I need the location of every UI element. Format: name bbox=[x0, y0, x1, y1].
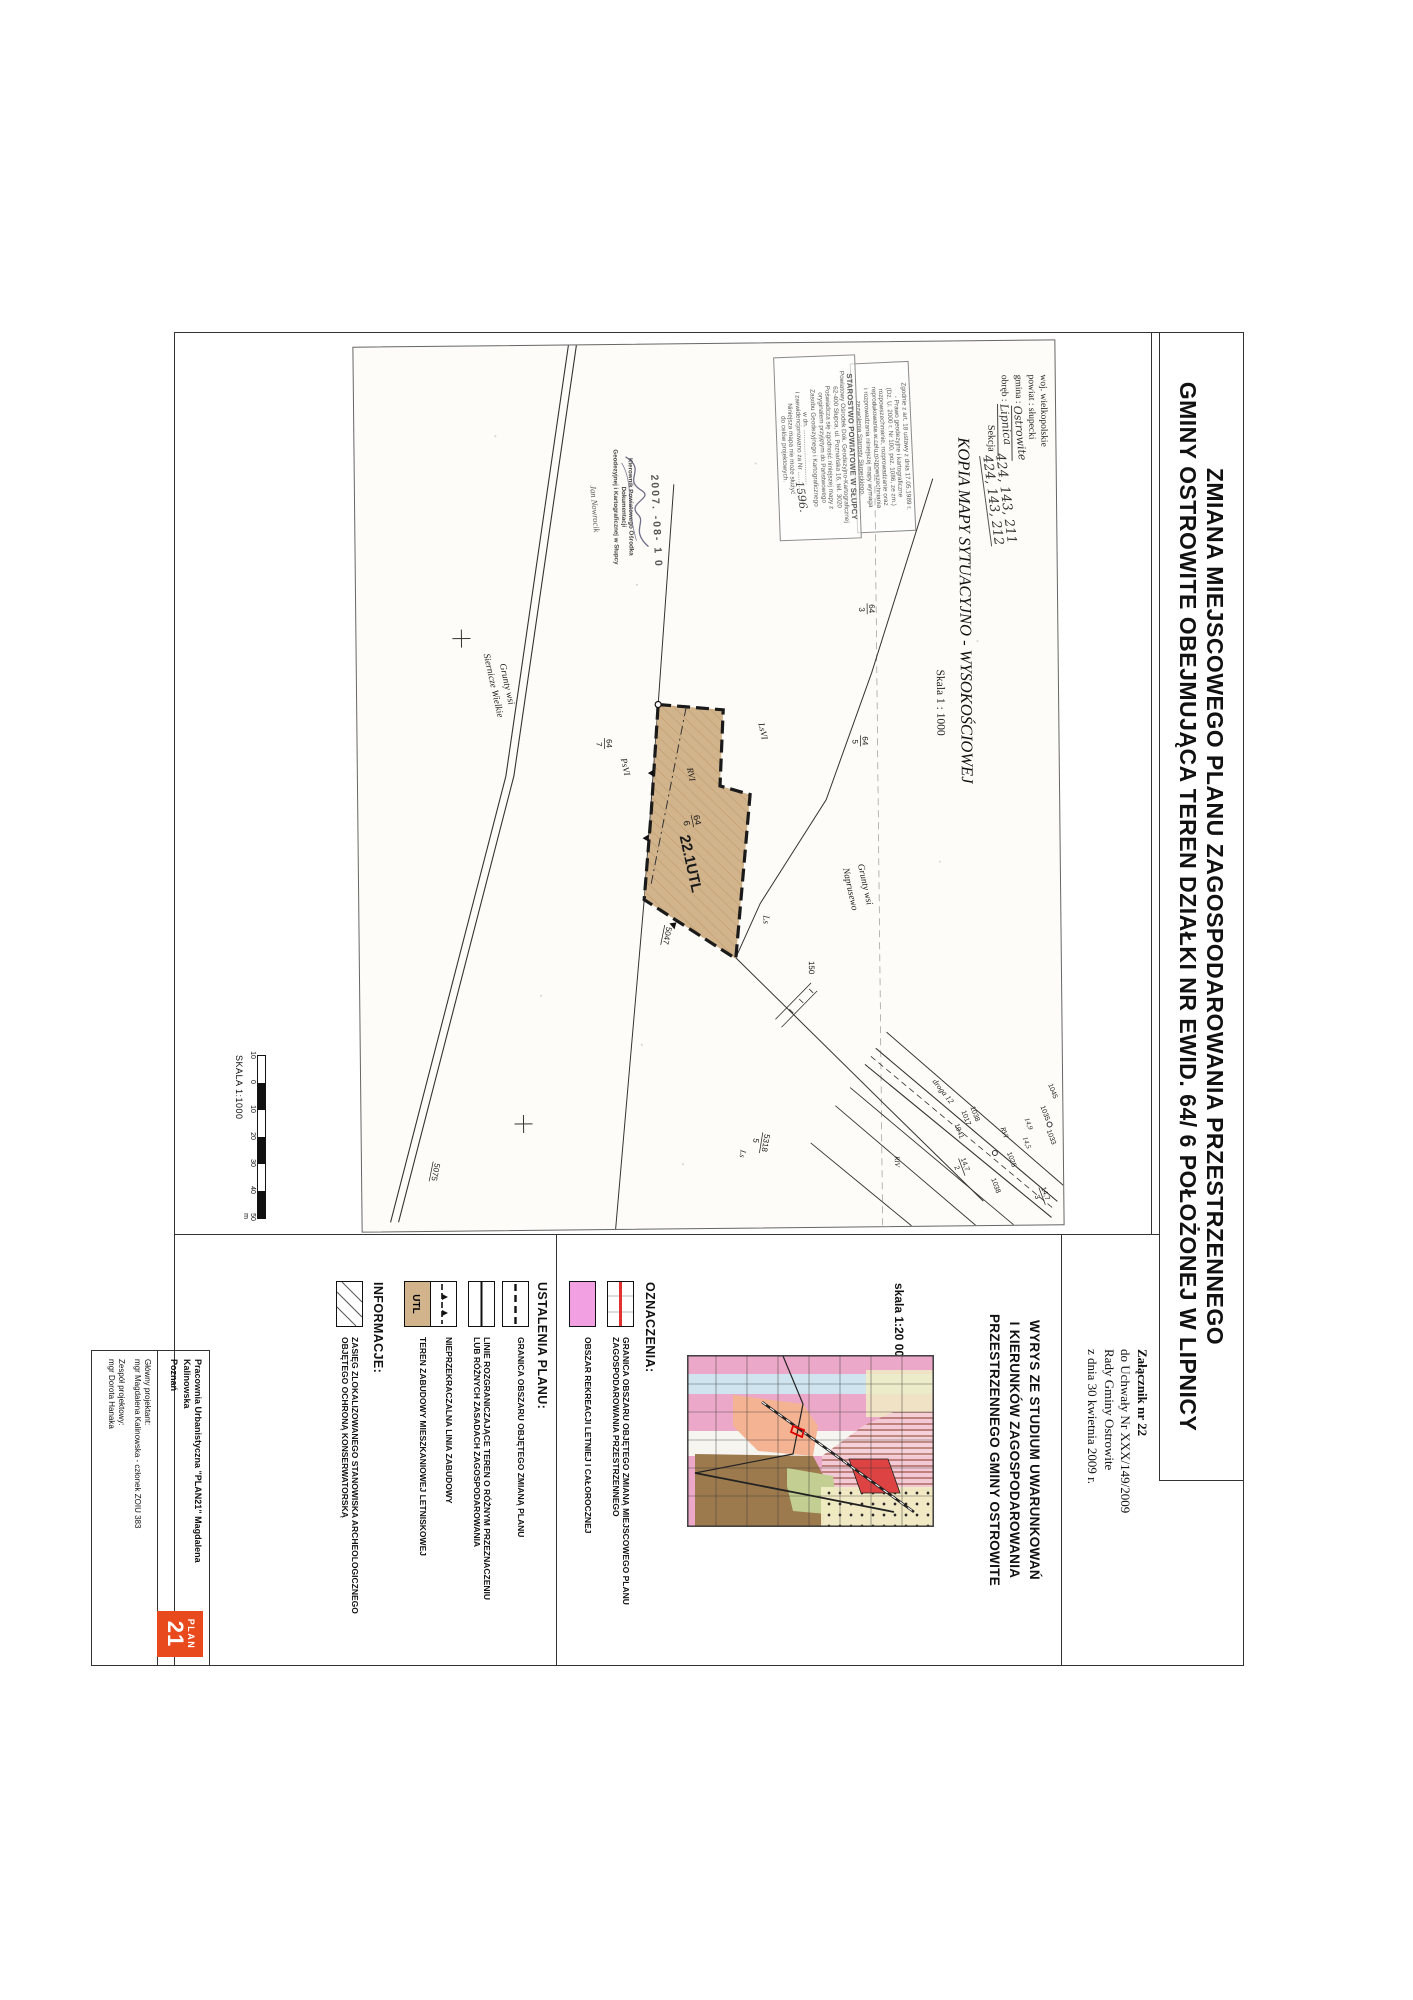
svg-text:3: 3 bbox=[1033, 1194, 1041, 1200]
role2-label: Zespół projektowy: bbox=[116, 1359, 126, 1657]
map-label: Siernicze Wielkie bbox=[481, 653, 505, 719]
scalebar-segment bbox=[258, 1083, 265, 1110]
map-label: 1025 bbox=[1005, 1151, 1017, 1168]
legend-symbol-red-line bbox=[607, 1281, 634, 1327]
scalebar-tick: 40 bbox=[249, 1186, 256, 1194]
ustalenia-heading: USTALENIA PLANU: bbox=[535, 1282, 549, 1409]
svg-text:1017: 1017 bbox=[960, 1110, 972, 1127]
map-label: 5047 bbox=[661, 925, 674, 947]
svg-text:PsVI: PsVI bbox=[619, 756, 633, 777]
office-name: Pracownia Urbanistyczna "PLAN21" Magdale… bbox=[181, 1359, 203, 1579]
map-label: Naprusewo bbox=[840, 866, 859, 912]
office-row: Pracownia Urbanistyczna "PLAN21" Magdale… bbox=[157, 1351, 209, 1665]
legend-symbol-pink-fill bbox=[569, 1281, 596, 1327]
study-heading: WYRYS ZE STUDIUM UWARUNKOWAŃI KIERUNKÓW … bbox=[984, 1235, 1044, 1665]
svg-text:1038: 1038 bbox=[989, 1177, 1001, 1194]
document-page: ZMIANA MIEJSCOWEGO PLANU ZAGOSPODAROWANI… bbox=[0, 0, 1413, 2000]
svg-text:5318: 5318 bbox=[760, 1133, 772, 1153]
attachment-line: Załącznik nr 22 bbox=[1134, 1349, 1151, 1513]
svg-text:UTL: UTL bbox=[410, 1294, 421, 1313]
svg-text:1025: 1025 bbox=[1005, 1151, 1017, 1168]
svg-text:5: 5 bbox=[751, 1138, 761, 1144]
parcel-22-1utl bbox=[642, 704, 752, 960]
legend-entry: NIEPRZEKRACZALNA LINIA ZABUDOWY bbox=[430, 1281, 457, 1637]
scalebar-segment bbox=[258, 1164, 265, 1191]
legend-symbol-dash-line bbox=[502, 1281, 529, 1327]
map-zone: woj. wielkopolskie powiat : słupecki gmi… bbox=[174, 333, 1152, 1234]
svg-text:64: 64 bbox=[860, 736, 869, 746]
study-heading-line: WYRYS ZE STUDIUM UWARUNKOWAŃ bbox=[1024, 1235, 1044, 1665]
map-label: Ls bbox=[761, 914, 771, 924]
svg-text:Ls: Ls bbox=[761, 914, 771, 924]
map-label: 14,5 bbox=[1021, 1136, 1033, 1151]
legend-caption: OBSZAR REKREACJI LETNIEJ I CAŁOROCZNEJ bbox=[583, 1337, 596, 1637]
svg-text:RIV: RIV bbox=[893, 1155, 901, 1168]
person2-name: mgr Dorota Hanaka bbox=[106, 1359, 116, 1657]
svg-text:1045: 1045 bbox=[1046, 1083, 1058, 1100]
study-heading-line: I KIERUNKÓW ZAGOSPODAROWANIA bbox=[1004, 1235, 1024, 1665]
svg-text:Ls: Ls bbox=[738, 1148, 748, 1158]
attachment-row: Załącznik nr 22do Uchwały Nr XXX/149/200… bbox=[1061, 1235, 1160, 1665]
document-title-line2: GMINY OSTROWITE OBEJMUJĄCA TEREN DZIAŁKI… bbox=[1175, 382, 1202, 1432]
legend-entry: GRANICA OBSZARU OBJĘTEGO ZMIANĄ PLANU bbox=[502, 1281, 529, 1637]
legend-entry: OBSZAR REKREACJI LETNIEJ I CAŁOROCZNEJ bbox=[569, 1281, 596, 1637]
scanned-map-sheet: woj. wielkopolskie powiat : słupecki gmi… bbox=[352, 339, 1064, 1232]
title-bar: ZMIANA MIEJSCOWEGO PLANU ZAGOSPODAROWANI… bbox=[1159, 333, 1243, 1481]
scalebar-tick: 10 bbox=[249, 1051, 256, 1059]
legend-caption: ZASIĘG ZLOKALIZOWANEGO STANOWISKA ARCHEO… bbox=[340, 1337, 363, 1637]
scalebar-bar bbox=[257, 1055, 266, 1219]
map-label: Ls bbox=[738, 1148, 748, 1158]
role1-label: Główny projektant: bbox=[142, 1359, 152, 1657]
legend-panel: Załącznik nr 22do Uchwały Nr XXX/149/200… bbox=[175, 1234, 1160, 1665]
document-title-line1: ZMIANA MIEJSCOWEGO PLANU ZAGOSPODAROWANI… bbox=[1202, 468, 1229, 1345]
study-excerpt-row: WYRYS ZE STUDIUM UWARUNKOWAŃI KIERUNKÓW … bbox=[556, 1235, 1062, 1665]
oznaczenia-heading: OZNACZENIA: bbox=[643, 1282, 657, 1373]
scalebar-tick: 20 bbox=[249, 1132, 256, 1140]
map-label: 643 bbox=[857, 603, 876, 614]
attachment-note: Załącznik nr 22do Uchwały Nr XXX/149/200… bbox=[1084, 1349, 1150, 1513]
cadastral-map-drawing: 22.1UTL646RVIPsVILsVILs643645647Grunty w… bbox=[353, 340, 1063, 1231]
legend-caption: NIEPRZEKRACZALNA LINIA ZABUDOWY bbox=[444, 1337, 457, 1637]
legend-symbol-hatch bbox=[336, 1281, 363, 1327]
svg-text:1035: 1035 bbox=[1039, 1105, 1051, 1122]
scalebar-segment bbox=[258, 1137, 265, 1164]
legend-entry: ZASIĘG ZLOKALIZOWANEGO STANOWISKA ARCHEO… bbox=[336, 1281, 363, 1637]
svg-text:LsVI: LsVI bbox=[756, 721, 770, 742]
svg-text:2: 2 bbox=[952, 1165, 960, 1171]
person1-name: mgr Magdalena Kalinowska - członek ZOIU … bbox=[132, 1359, 142, 1657]
map-label: 1045 bbox=[1046, 1083, 1058, 1100]
scalebar-segment bbox=[258, 1110, 265, 1137]
scalebar-tick: 0 bbox=[249, 1080, 256, 1084]
attachment-line: do Uchwały Nr XXX/149/2009 bbox=[1117, 1349, 1134, 1513]
scalebar: 1001020304050 m SKALA 1:1000 bbox=[234, 1055, 266, 1235]
map-label: 5075 bbox=[429, 1162, 442, 1184]
map-label: 645 bbox=[850, 735, 869, 746]
plan-sheet: ZMIANA MIEJSCOWEGO PLANU ZAGOSPODAROWANI… bbox=[175, 333, 1243, 1665]
map-label: 14,9 bbox=[1023, 1117, 1035, 1132]
svg-text:14,9: 14,9 bbox=[1023, 1117, 1035, 1132]
informacje-heading: INFORMACJE: bbox=[371, 1282, 385, 1373]
svg-text:5: 5 bbox=[851, 739, 860, 744]
legend-symbol-utl-fill: UTL bbox=[404, 1281, 431, 1327]
legend-entry: UTLTEREN ZABUDOWY MIESZKANIOWEJ LETNISKO… bbox=[404, 1281, 431, 1637]
plan21-logo: PLAN 21 bbox=[157, 1611, 203, 1657]
svg-text:64: 64 bbox=[867, 604, 876, 614]
plan-legend-row: USTALENIA PLANU: GRANICA OBSZARU OBJĘTEG… bbox=[175, 1235, 557, 1665]
legend-symbol-setback-line bbox=[430, 1281, 457, 1327]
legend-caption: GRANICA OBSZARU OBJĘTEGO ZMIANĄ PLANU bbox=[516, 1337, 529, 1637]
map-label: 53185 bbox=[750, 1131, 772, 1155]
svg-text:1033: 1033 bbox=[1045, 1129, 1057, 1146]
map-label: 1017 bbox=[960, 1110, 972, 1127]
scalebar-label: SKALA 1:1000 bbox=[234, 1055, 244, 1235]
svg-text:14,5: 14,5 bbox=[1021, 1136, 1033, 1151]
legend-caption: TEREN ZABUDOWY MIESZKANIOWEJ LETNISKOWEJ bbox=[418, 1337, 431, 1637]
svg-text:3: 3 bbox=[857, 607, 866, 612]
map-label: 1033 bbox=[1045, 1129, 1057, 1146]
legend-caption: LINIE ROZGRANICZAJĄCE TEREN O RÓŻNYM PRZ… bbox=[472, 1337, 495, 1637]
map-label: 647 bbox=[594, 738, 613, 749]
svg-text:Siernicze Wielkie: Siernicze Wielkie bbox=[481, 653, 505, 719]
designer-footer: Pracownia Urbanistyczna "PLAN21" Magdale… bbox=[91, 1350, 210, 1666]
scalebar-tick: 10 bbox=[249, 1105, 256, 1113]
scalebar-segment bbox=[258, 1056, 265, 1083]
legend-entry: GRANICA OBSZARU OBJĘTEGO ZMIANĄ MIEJSCOW… bbox=[607, 1281, 634, 1637]
scalebar-tick: 50 m bbox=[242, 1213, 256, 1221]
svg-text:150: 150 bbox=[807, 961, 816, 975]
map-label: 1038 bbox=[989, 1177, 1001, 1194]
map-label: PsVI bbox=[619, 756, 633, 777]
attachment-line: z dnia 30 kwietnia 2009 r. bbox=[1084, 1349, 1101, 1513]
map-label: LsVI bbox=[756, 721, 770, 742]
scalebar-segment bbox=[258, 1191, 265, 1218]
attachment-line: Rady Gminy Ostrowite bbox=[1101, 1349, 1118, 1513]
map-label: 14,72 bbox=[950, 1156, 971, 1179]
map-label: RIV bbox=[893, 1155, 901, 1168]
study-map-image bbox=[687, 1355, 934, 1527]
designers-row: Główny projektant: mgr Magdalena Kalinow… bbox=[95, 1351, 157, 1665]
scalebar-tick: 30 bbox=[249, 1159, 256, 1167]
map-label: 150 bbox=[807, 961, 816, 975]
study-scale-note: skala 1:20 000 bbox=[892, 1283, 906, 1364]
svg-text:Naprusewo: Naprusewo bbox=[840, 866, 859, 912]
map-label: 1035 bbox=[1039, 1105, 1051, 1122]
legend-symbol-solid-line bbox=[468, 1281, 495, 1327]
study-heading-line: PRZESTRZENNEGO GMINY OSTROWITE bbox=[984, 1235, 1004, 1665]
legend-entry: LINIE ROZGRANICZAJĄCE TEREN O RÓŻNYM PRZ… bbox=[468, 1281, 495, 1637]
svg-text:7: 7 bbox=[595, 742, 604, 747]
scalebar-ticks: 1001020304050 m bbox=[247, 1055, 257, 1217]
svg-text:64: 64 bbox=[605, 739, 614, 749]
legend-caption: GRANICA OBSZARU OBJĘTEGO ZMIANĄ MIEJSCOW… bbox=[611, 1337, 634, 1637]
